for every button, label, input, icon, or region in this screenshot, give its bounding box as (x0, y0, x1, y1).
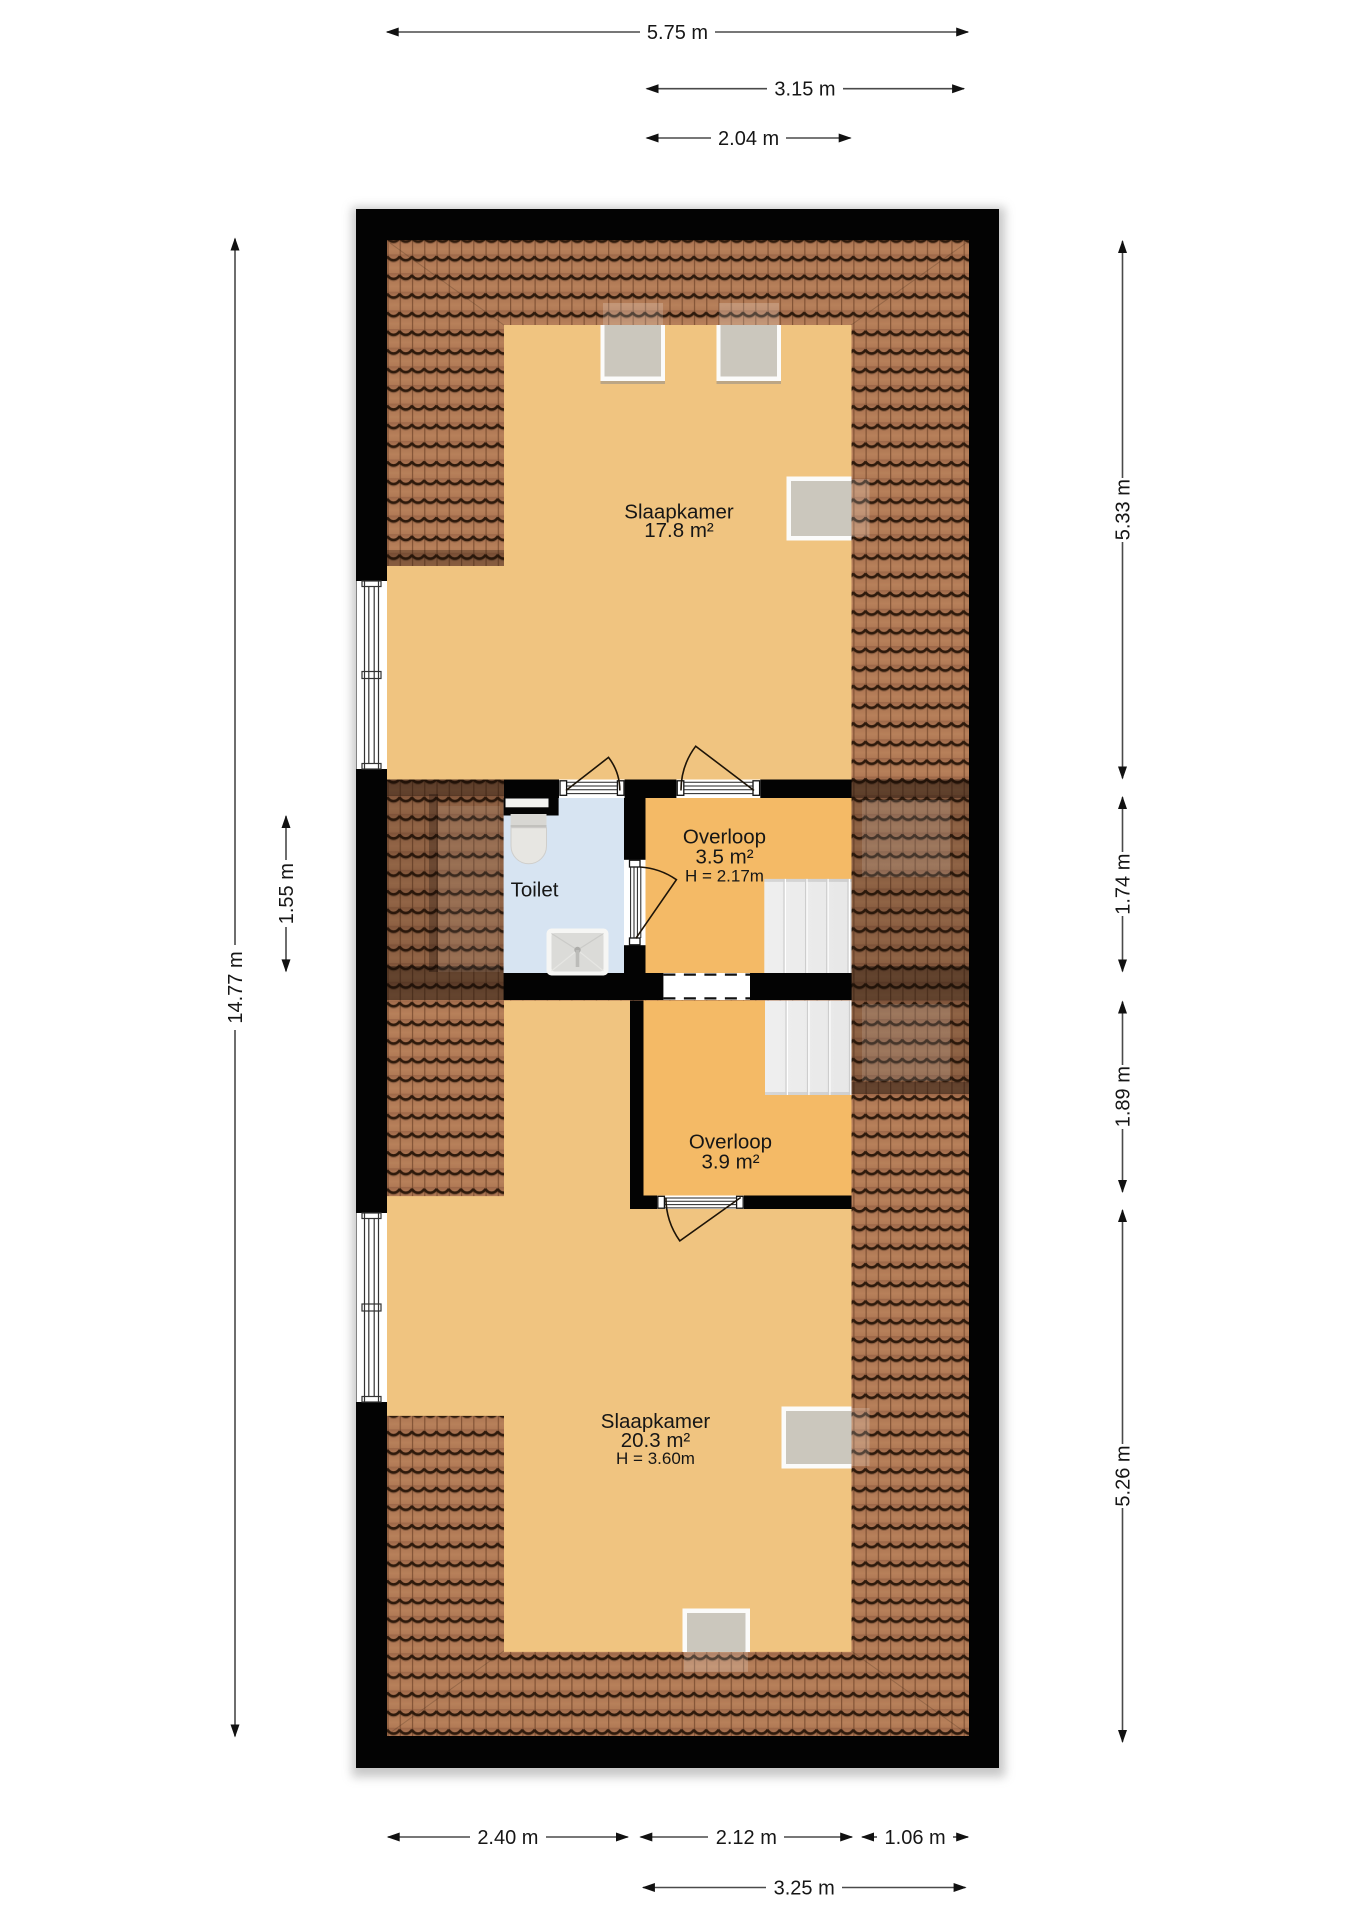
svg-text:5.26 m: 5.26 m (1112, 1445, 1134, 1506)
svg-text:5.75 m: 5.75 m (647, 22, 708, 44)
svg-text:2.12 m: 2.12 m (716, 1827, 777, 1849)
svg-text:1.06 m: 1.06 m (885, 1827, 946, 1849)
svg-text:5.33 m: 5.33 m (1112, 479, 1134, 540)
svg-text:Toilet: Toilet (511, 879, 559, 902)
svg-text:3.25 m: 3.25 m (774, 1877, 835, 1899)
svg-text:H = 3.60m: H = 3.60m (616, 1449, 695, 1468)
svg-text:1.89 m: 1.89 m (1112, 1066, 1134, 1127)
svg-text:2.40 m: 2.40 m (477, 1827, 538, 1849)
svg-text:2.04 m: 2.04 m (718, 128, 779, 150)
svg-text:H = 2.17m: H = 2.17m (685, 867, 764, 886)
svg-text:14.77 m: 14.77 m (225, 951, 247, 1023)
svg-text:3.9 m²: 3.9 m² (701, 1151, 759, 1174)
svg-text:1.55 m: 1.55 m (276, 863, 298, 924)
svg-text:3.5 m²: 3.5 m² (695, 846, 753, 869)
svg-text:1.74 m: 1.74 m (1112, 854, 1134, 915)
svg-text:17.8 m²: 17.8 m² (644, 519, 714, 542)
svg-text:3.15 m: 3.15 m (774, 79, 835, 101)
